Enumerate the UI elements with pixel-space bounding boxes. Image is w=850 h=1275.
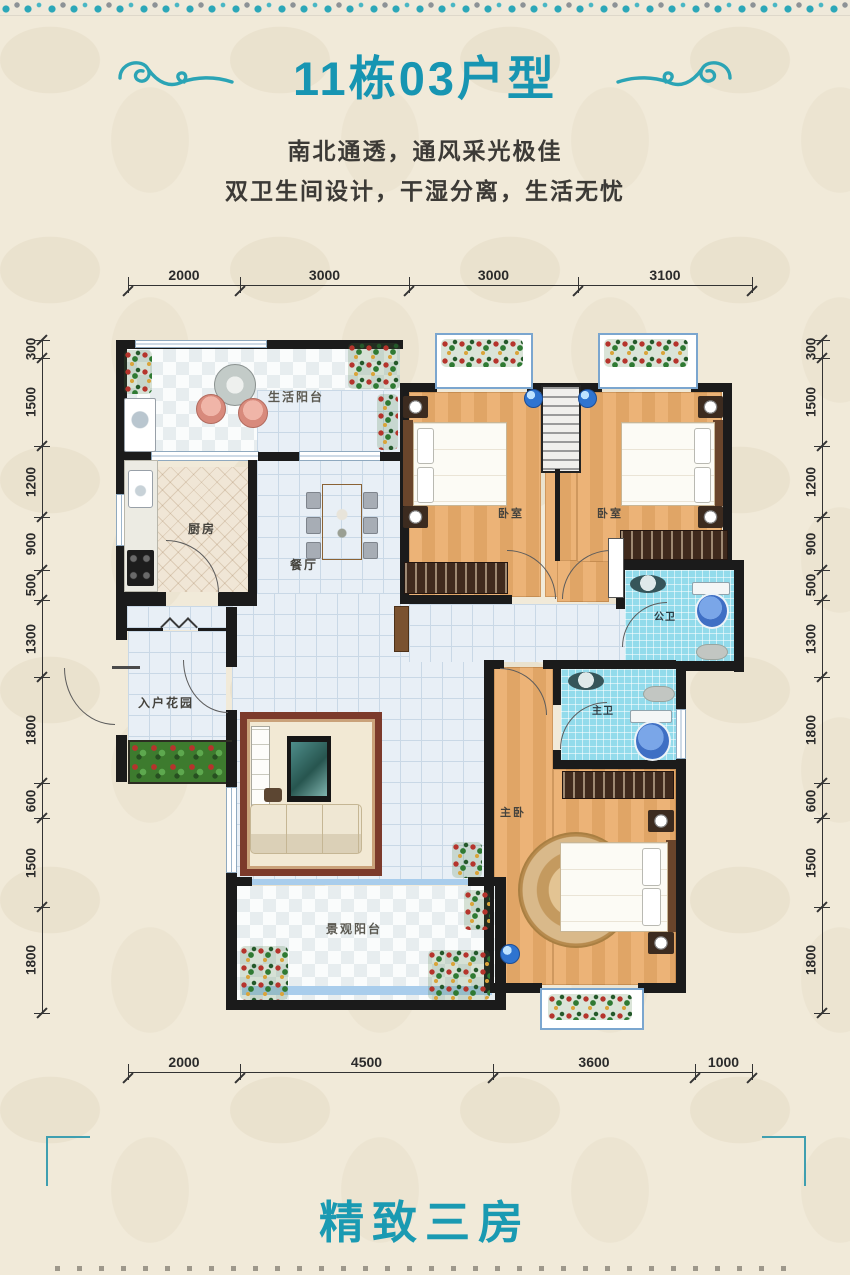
wall — [553, 760, 685, 769]
nightstand-icon — [698, 506, 723, 528]
footer-title: 精致三房 — [0, 1186, 850, 1251]
plant-icon — [240, 946, 288, 1000]
dim-value: 1500 — [804, 367, 819, 437]
wall — [484, 983, 542, 993]
ac-unit-icon — [524, 389, 543, 408]
cutoff-text-row — [55, 1266, 795, 1271]
toilet-icon — [695, 593, 729, 629]
wall — [610, 560, 744, 570]
dim-value: 1200 — [24, 447, 39, 517]
bay-flowers-icon — [441, 339, 523, 367]
sink-icon — [630, 575, 666, 593]
room-label-bedroom-left: 卧室 — [498, 505, 524, 521]
dim-value: 1200 — [804, 447, 819, 517]
dim-segment: 2000 — [128, 263, 240, 286]
dim-value: 3100 — [578, 267, 752, 283]
decor-ball-icon — [500, 944, 520, 964]
dim-value: 2000 — [128, 1054, 240, 1070]
tv-screen — [291, 742, 327, 796]
dim-segment: 3100 — [578, 263, 752, 286]
dimension-col-left: 300 1500 1200 900 500 1300 1800 600 1500… — [20, 340, 43, 1013]
plant-icon — [464, 890, 490, 930]
dim-value: 3000 — [240, 267, 409, 283]
wall — [226, 710, 237, 742]
sofa-icon — [250, 804, 362, 854]
room-label-life-balcony: 生活阳台 — [268, 388, 324, 405]
room-label-master-bedroom: 主卧 — [500, 804, 526, 820]
wall — [116, 735, 127, 782]
planter-box — [128, 740, 232, 784]
wall — [543, 660, 676, 669]
nightstand-icon — [403, 396, 428, 418]
wall — [734, 560, 744, 672]
plant-icon — [428, 950, 490, 1000]
dim-value: 1500 — [804, 828, 819, 898]
wall — [638, 983, 686, 993]
coffee-table-icon — [264, 788, 282, 802]
dim-segment: 1200 — [800, 446, 823, 517]
washing-machine-icon — [124, 398, 156, 452]
room-label-entry-garden: 入户花园 — [138, 694, 194, 711]
patio-chair-icon — [196, 394, 226, 424]
window — [300, 452, 380, 460]
dim-segment: 3000 — [409, 263, 578, 286]
console-cabinet — [394, 606, 409, 652]
room-label-bedroom-right: 卧室 — [597, 505, 623, 521]
dim-value: 1300 — [24, 604, 39, 674]
dim-segment: 300 — [800, 340, 823, 358]
wall — [484, 660, 494, 990]
wall — [237, 877, 252, 886]
wall — [400, 595, 512, 604]
dim-value: 3600 — [493, 1054, 695, 1070]
door-leaf — [112, 666, 140, 669]
dimension-row-bottom: 2000 4500 3600 1000 — [128, 1050, 752, 1073]
wall — [226, 1000, 506, 1010]
dimension-col-right: 300 1500 1200 900 500 1300 1800 600 1500… — [800, 340, 823, 1013]
dim-segment: 600 — [800, 783, 823, 818]
dim-value: 2000 — [128, 267, 240, 283]
dim-segment: 1000 — [695, 1050, 752, 1073]
dim-value: 1300 — [804, 604, 819, 674]
room-label-public-bath: 公卫 — [654, 608, 676, 623]
chair-icon — [363, 492, 378, 509]
pillow-icon — [694, 428, 711, 464]
wall — [553, 669, 561, 705]
chair-icon — [306, 517, 321, 534]
window — [152, 452, 258, 460]
wall — [258, 452, 300, 461]
nightstand-icon — [403, 506, 428, 528]
sliding-door-balcony — [252, 879, 468, 885]
door-arc-main-entrance — [64, 668, 115, 725]
dim-value: 1800 — [24, 695, 39, 765]
chair-icon — [363, 542, 378, 559]
bed-headboard — [403, 420, 413, 506]
dim-segment: 3000 — [240, 263, 409, 286]
wall — [218, 592, 257, 606]
dim-value: 1500 — [24, 828, 39, 898]
wall — [555, 469, 560, 561]
nightstand-icon — [698, 396, 723, 418]
dimension-row-top: 2000 3000 3000 3100 — [128, 263, 752, 286]
corner-bracket-right — [762, 1136, 806, 1186]
dim-segment: 500 — [20, 570, 43, 600]
duct-shaft — [541, 385, 581, 473]
plant-icon — [452, 842, 482, 878]
room-label-master-bath: 主卫 — [592, 702, 614, 717]
sink-icon — [568, 672, 604, 690]
dim-segment: 4500 — [240, 1050, 493, 1073]
stove-icon — [127, 550, 154, 586]
window — [677, 710, 685, 758]
pillow-icon — [642, 848, 661, 886]
bath-mat-icon — [696, 644, 728, 660]
pillow-icon — [694, 467, 711, 503]
plant-icon — [348, 343, 400, 389]
wall — [676, 661, 744, 671]
kitchen-sink-icon — [128, 470, 153, 508]
wall — [380, 452, 402, 461]
wardrobe — [620, 530, 728, 560]
bay-flowers-icon — [548, 994, 632, 1020]
bath-mat-icon — [643, 686, 675, 702]
wall — [226, 877, 237, 1010]
floor-corridor — [409, 604, 625, 662]
window — [136, 341, 266, 347]
dim-segment: 1300 — [20, 600, 43, 677]
subtitle-line2: 双卫生间设计，干湿分离，生活无忧 — [0, 172, 850, 206]
dim-segment: 500 — [800, 570, 823, 600]
duct — [608, 538, 624, 598]
room-label-dining: 餐厅 — [290, 556, 318, 573]
ac-unit-icon — [578, 389, 597, 408]
ornamental-border — [0, 0, 850, 16]
plant-icon — [124, 350, 152, 394]
dim-segment: 1500 — [800, 358, 823, 446]
dim-segment: 600 — [20, 783, 43, 818]
pillow-icon — [417, 428, 434, 464]
nightstand-icon — [648, 932, 674, 954]
wardrobe — [404, 562, 508, 594]
dim-segment: 1300 — [800, 600, 823, 677]
dim-segment: 1800 — [20, 907, 43, 1013]
bay-flowers-icon — [604, 339, 688, 367]
wall — [127, 628, 163, 631]
dim-segment: 1800 — [800, 907, 823, 1013]
dim-value: 1800 — [24, 925, 39, 995]
dim-segment: 1500 — [20, 358, 43, 446]
dining-table-icon — [322, 484, 362, 560]
wall — [116, 592, 166, 606]
wall — [248, 460, 257, 592]
subtitle-line1: 南北通透，通风采光极佳 — [0, 132, 850, 166]
dim-segment: 1500 — [20, 818, 43, 907]
flourish-right-icon — [614, 52, 732, 104]
chair-icon — [306, 492, 321, 509]
window — [227, 788, 236, 872]
wall — [226, 607, 237, 667]
pillow-icon — [417, 467, 434, 503]
dim-segment: 2000 — [128, 1050, 240, 1073]
chair-icon — [363, 517, 378, 534]
room-label-view-balcony: 景观阳台 — [326, 920, 382, 937]
wardrobe — [562, 771, 674, 799]
dim-segment: 1200 — [20, 446, 43, 517]
dim-value: 1800 — [804, 695, 819, 765]
nightstand-icon — [648, 810, 674, 832]
plant-icon — [377, 394, 398, 450]
floorplan-poster: { "header": { "title": "11栋03户型", "subti… — [0, 0, 850, 1275]
dim-value: 1000 — [695, 1054, 752, 1070]
dim-value: 1800 — [804, 925, 819, 995]
toilet-icon — [634, 721, 671, 761]
dim-segment: 300 — [20, 340, 43, 358]
patio-chair-icon — [238, 398, 268, 428]
dim-value: 4500 — [240, 1054, 493, 1070]
pillow-icon — [642, 888, 661, 926]
dim-value: 3000 — [409, 267, 578, 283]
dim-segment: 3600 — [493, 1050, 695, 1073]
room-label-kitchen: 厨房 — [188, 520, 216, 537]
corner-bracket-left — [46, 1136, 90, 1186]
dim-segment: 1500 — [800, 818, 823, 907]
dim-value: 1500 — [24, 367, 39, 437]
entry-double-door-icon — [163, 620, 195, 634]
